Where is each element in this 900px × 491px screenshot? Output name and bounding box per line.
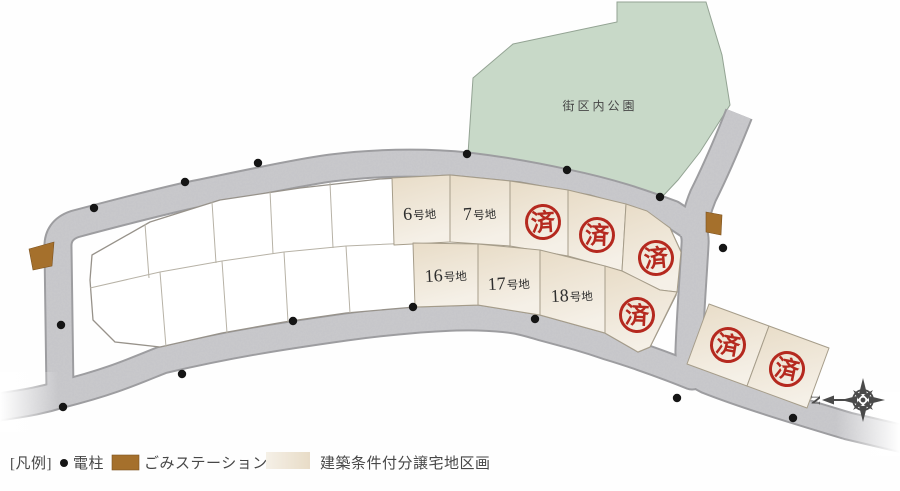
utility-pole — [656, 193, 664, 201]
site-plan-canvas: 街区内公園 — [0, 0, 900, 491]
utility-pole — [673, 394, 681, 402]
site-plan-map: 街区内公園 — [0, 0, 900, 491]
utility-pole — [409, 303, 417, 311]
park-label: 街区内公園 — [562, 99, 637, 113]
utility-pole — [789, 414, 797, 422]
beige-swatch-icon — [266, 452, 310, 469]
utility-pole — [181, 178, 189, 186]
utility-pole — [463, 150, 471, 158]
legend-parcel-label: 建築条件付分譲宅地区画 — [320, 454, 491, 472]
legend-title: [凡例] — [10, 455, 52, 472]
svg-text:済: 済 — [585, 221, 611, 250]
garbage-station — [706, 212, 722, 235]
utility-pole — [531, 315, 539, 323]
svg-text:済: 済 — [624, 301, 650, 330]
legend-garbage-label: ごみステーション — [144, 455, 268, 472]
utility-pole — [254, 159, 262, 167]
black-dot-icon — [60, 459, 68, 467]
utility-pole — [719, 244, 727, 252]
svg-text:済: 済 — [643, 243, 670, 273]
legend: [凡例] 電柱 ごみステーション 建築条件付分譲宅地区画 — [10, 452, 491, 472]
brown-swatch-icon — [112, 455, 139, 470]
sold-stamp: 済 — [580, 218, 614, 252]
utility-pole — [59, 403, 67, 411]
utility-pole — [289, 317, 297, 325]
utility-pole — [563, 166, 571, 174]
utility-pole — [178, 370, 186, 378]
utility-pole — [90, 204, 98, 212]
svg-text:済: 済 — [530, 208, 557, 238]
garbage-station — [29, 242, 54, 270]
legend-pole-label: 電柱 — [73, 455, 104, 472]
north-label: N — [809, 395, 824, 405]
fade-left — [0, 372, 58, 432]
utility-pole — [57, 321, 65, 329]
